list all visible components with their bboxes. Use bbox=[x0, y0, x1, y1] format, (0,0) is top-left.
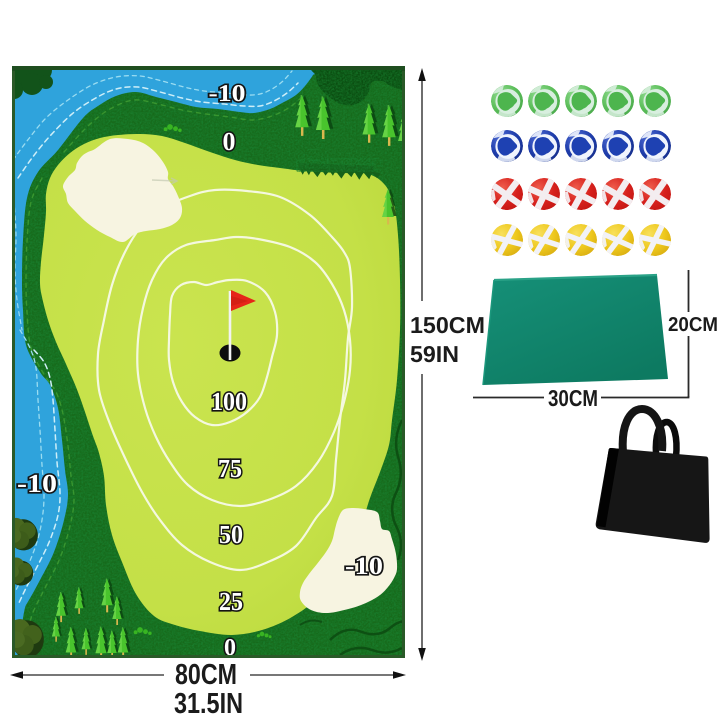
svg-text:100: 100 bbox=[211, 387, 247, 416]
svg-text:150CM: 150CM bbox=[410, 312, 485, 338]
svg-text:31.5IN: 31.5IN bbox=[174, 688, 243, 720]
svg-text:-10: -10 bbox=[17, 469, 57, 498]
svg-text:20CM: 20CM bbox=[668, 314, 718, 336]
svg-text:-10: -10 bbox=[345, 553, 383, 580]
svg-text:30CM: 30CM bbox=[548, 385, 598, 411]
svg-text:80CM: 80CM bbox=[175, 659, 237, 691]
svg-text:59IN: 59IN bbox=[410, 341, 459, 367]
svg-text:50: 50 bbox=[219, 520, 243, 549]
svg-text:-10: -10 bbox=[209, 81, 246, 107]
svg-text:0: 0 bbox=[223, 127, 236, 156]
svg-text:25: 25 bbox=[219, 587, 243, 616]
svg-text:75: 75 bbox=[218, 454, 242, 483]
